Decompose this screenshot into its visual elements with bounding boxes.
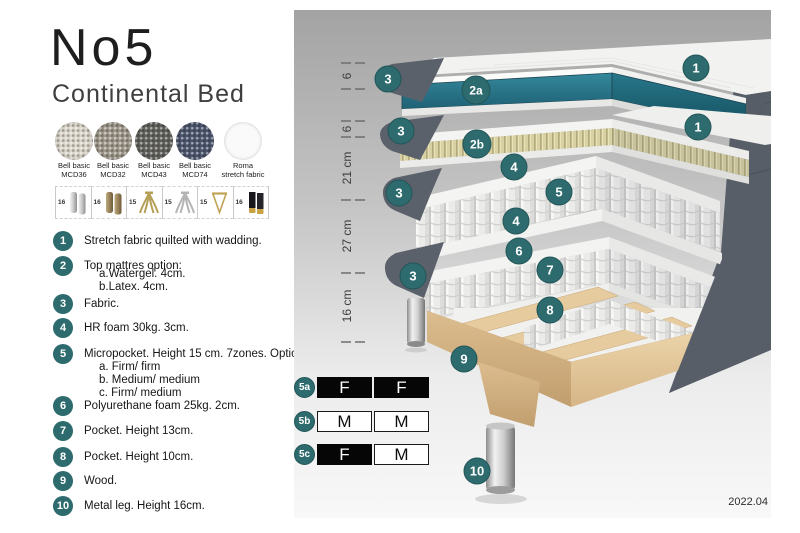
callout-layer3-micropocket: 5	[546, 179, 572, 205]
cylinder-bronze-leg-icon	[103, 190, 125, 215]
callout-layer3-fabric: 3	[386, 180, 412, 206]
legend-item-7: 7Pocket. Height 13cm.	[53, 421, 193, 441]
leg-height-label: 16	[236, 199, 245, 206]
legend-item-10: 10Metal leg. Height 16cm.	[53, 496, 205, 516]
svg-text:4: 4	[510, 160, 518, 175]
legend-number-badge: 6	[53, 396, 73, 416]
fabric-swatch-mcd36	[55, 122, 93, 160]
rear-metal-leg	[405, 298, 427, 353]
callout-metal-leg: 10	[464, 458, 490, 484]
legend-item-1: 1Stretch fabric quilted with wadding.	[53, 231, 262, 251]
legend-number-badge: 4	[53, 318, 73, 338]
page-title: No5	[50, 22, 157, 74]
fabric-swatch-roma	[224, 122, 262, 160]
legend-number-badge: 3	[53, 294, 73, 314]
leg-options-row: 16 16 15 15 15 16	[55, 186, 269, 219]
legend-item-5-sub-b: b. Medium/ medium	[99, 374, 200, 386]
leg-option-silver-cylinder: 16	[55, 186, 91, 219]
splayed-gold-leg-icon	[138, 190, 160, 215]
splayed-silver-leg-icon	[174, 190, 196, 215]
hairpin-gold-leg-icon	[209, 190, 231, 215]
legend-item-5-sub-a: a. Firm/ firm	[99, 361, 160, 373]
callout-layer2-stretch: 1	[685, 114, 711, 140]
firmness-row-5b: M M	[317, 411, 429, 432]
svg-text:6: 6	[515, 244, 522, 259]
legend-item-9: 9Wood.	[53, 471, 117, 491]
callout-layer2-topper-latex: 2b	[463, 130, 491, 158]
ruler-label-16cm: 16 cm	[340, 290, 354, 323]
svg-text:3: 3	[397, 124, 404, 139]
leg-option-splayed-gold: 15	[126, 186, 162, 219]
ruler-label-6a: 6	[340, 72, 354, 79]
fabric-swatch-mcd43	[135, 122, 173, 160]
leg-option-hairpin-gold: 15	[197, 186, 233, 219]
svg-text:1: 1	[694, 120, 701, 135]
firmness-cell: F	[374, 377, 429, 398]
legend-number-badge: 5	[53, 344, 73, 364]
callout-layer4-pocket10: 8	[537, 297, 563, 323]
legend-item-4: 4HR foam 30kg. 3cm.	[53, 318, 189, 338]
svg-text:3: 3	[409, 269, 416, 284]
bed-diagram-panel: 6 6 21 cm 27 cm 16 cm 3 2a 1 3 2b 1 4 5 …	[294, 10, 771, 518]
legend-number-badge: 10	[53, 496, 73, 516]
cylinder-black-gold-leg-icon	[245, 190, 267, 215]
firmness-cell: F	[317, 444, 372, 465]
leg-option-black-gold-cylinder: 16	[233, 186, 270, 219]
fabric-swatch-mcd32	[94, 122, 132, 160]
svg-text:1: 1	[692, 61, 699, 76]
callout-layer2-fabric: 3	[388, 118, 414, 144]
callout-layer3-hr-top: 4	[501, 154, 527, 180]
firmness-badge-5a: 5a	[294, 377, 315, 398]
legend-item-8: 8Pocket. Height 10cm.	[53, 447, 193, 467]
leg-height-label: 15	[200, 199, 209, 206]
version-stamp: 2022.04	[728, 496, 768, 508]
callout-layer1-topper-watergel: 2a	[462, 76, 490, 104]
firmness-cell: M	[317, 411, 372, 432]
svg-text:5: 5	[555, 185, 562, 200]
leg-height-label: 16	[94, 199, 103, 206]
firmness-badge-5b: 5b	[294, 411, 315, 432]
svg-text:4: 4	[512, 214, 520, 229]
svg-text:2b: 2b	[470, 138, 484, 152]
legend-number-badge: 1	[53, 231, 73, 251]
swatch-label: Romastretch fabric	[205, 161, 281, 179]
firmness-badge-5c: 5c	[294, 444, 315, 465]
legend-item-6: 6Polyurethane foam 25kg. 2cm.	[53, 396, 240, 416]
svg-text:8: 8	[546, 303, 553, 318]
callout-layer4-pu: 6	[506, 238, 532, 264]
legend-number-badge: 9	[53, 471, 73, 491]
leg-height-label: 16	[58, 199, 67, 206]
firmness-cell: F	[317, 377, 372, 398]
firmness-row-5a: F F	[317, 377, 429, 398]
firmness-cell: M	[374, 444, 429, 465]
leg-option-splayed-silver: 15	[162, 186, 198, 219]
bed-exploded-diagram: 6 6 21 cm 27 cm 16 cm 3 2a 1 3 2b 1 4 5 …	[294, 10, 771, 518]
leg-option-bronze-cylinder: 16	[91, 186, 127, 219]
cylinder-silver-leg-icon	[67, 190, 89, 215]
callout-layer1-fabric: 3	[375, 66, 401, 92]
callout-layer4-fabric: 3	[400, 263, 426, 289]
page-subtitle: Continental Bed	[52, 80, 245, 109]
callout-layer3-hr-bottom: 4	[503, 208, 529, 234]
legend-item-2-sub-a: a.Watergel. 4cm.	[99, 268, 186, 280]
brochure-page: No5 Continental Bed Bell basicMCD36 Bell…	[0, 0, 800, 533]
legend-item-2-sub-b: b.Latex. 4cm.	[99, 281, 168, 293]
ruler-label-21cm: 21 cm	[340, 152, 354, 185]
legend-item-5: 5Micropocket. Height 15 cm. 7zones. Opti…	[53, 344, 307, 364]
svg-text:9: 9	[460, 352, 467, 367]
ruler-label-6b: 6	[340, 125, 354, 132]
leg-height-label: 15	[129, 199, 138, 206]
legend-number-badge: 8	[53, 447, 73, 467]
legend-number-badge: 2	[53, 256, 73, 276]
legend-item-3: 3Fabric.	[53, 294, 119, 314]
callout-base-wood: 9	[451, 346, 477, 372]
svg-text:3: 3	[384, 72, 391, 87]
firmness-cell: M	[374, 411, 429, 432]
firmness-row-5c: F M	[317, 444, 429, 465]
ruler-label-27cm: 27 cm	[340, 220, 354, 253]
svg-text:7: 7	[546, 263, 553, 278]
svg-text:2a: 2a	[469, 84, 483, 98]
callout-layer1-stretch: 1	[683, 55, 709, 81]
leg-height-label: 15	[165, 199, 174, 206]
svg-text:10: 10	[470, 464, 484, 479]
svg-text:3: 3	[395, 186, 402, 201]
callout-layer4-pocket13: 7	[537, 257, 563, 283]
fabric-swatch-mcd74	[176, 122, 214, 160]
legend-number-badge: 7	[53, 421, 73, 441]
